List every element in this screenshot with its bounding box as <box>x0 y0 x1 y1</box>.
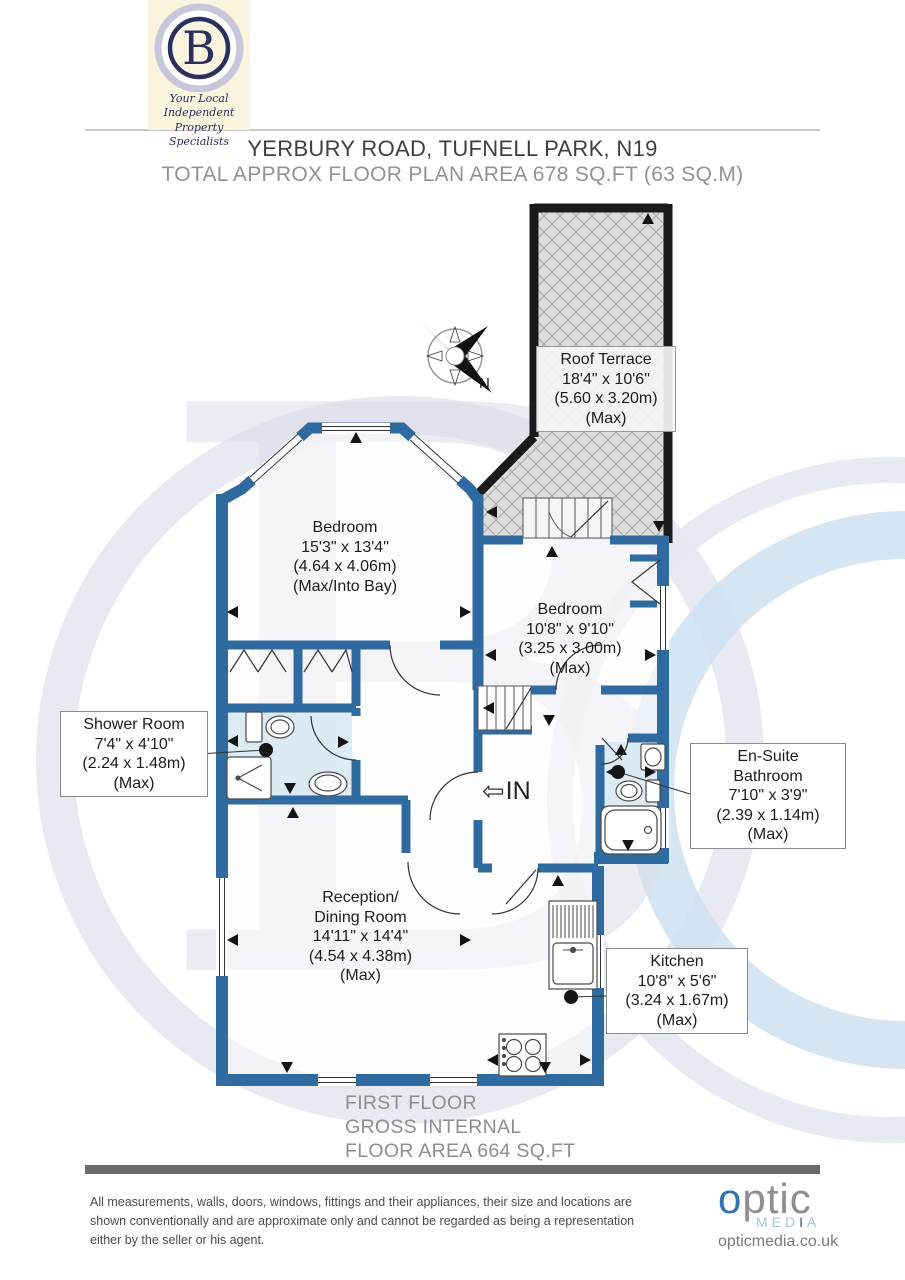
room-name: En-Suite <box>695 747 841 767</box>
room-dims-metric: (4.54 x 4.38m) <box>268 947 453 967</box>
bedroom-rear-label: Bedroom 10'8" x 9'10" (3.25 x 3.00m) (Ma… <box>480 600 660 678</box>
footer-divider-bar <box>85 1165 820 1174</box>
room-name: Bedroom <box>255 518 435 538</box>
terrace-steps <box>523 498 612 538</box>
room-dims-imperial: 7'10" x 3'9" <box>695 786 841 806</box>
disclaimer-line1: All measurements, walls, doors, windows,… <box>90 1193 675 1212</box>
room-name: Dining Room <box>268 908 453 928</box>
ensuite-label: En-Suite Bathroom 7'10" x 3'9" (2.39 x 1… <box>690 743 846 849</box>
room-dims-imperial: 10'8" x 5'6" <box>611 972 743 992</box>
room-name: Reception/ <box>268 888 453 908</box>
disclaimer-line3: either by the seller or his agent. <box>90 1231 675 1250</box>
room-qualifier: (Max) <box>539 409 673 429</box>
room-qualifier: (Max) <box>611 1011 743 1031</box>
bathtub-icon <box>601 806 661 854</box>
room-dims-imperial: 14'11" x 14'4" <box>268 927 453 947</box>
floorplan-drawing: B <box>0 0 905 1280</box>
vendor-media-label: MEDIA <box>756 1214 898 1230</box>
bedroom-front-label: Bedroom 15'3" x 13'4" (4.64 x 4.06m) (Ma… <box>255 518 435 596</box>
vendor-logo: optic MEDIA opticmedia.co.uk <box>718 1178 898 1251</box>
room-dims-imperial: 18'4" x 10'6" <box>539 370 673 390</box>
vendor-media-right: A <box>807 1214 820 1230</box>
floorplan-page: B Your Local Independent Property Specia… <box>0 0 905 1280</box>
entrance-label: ⇦ IN <box>482 776 531 807</box>
reception-label: Reception/ Dining Room 14'11" x 14'4" (4… <box>268 888 453 986</box>
vendor-wordmark-o: o <box>718 1175 742 1222</box>
entrance-arrow-icon: ⇦ <box>482 776 505 807</box>
room-dims-imperial: 7'4" x 4'10" <box>65 735 203 755</box>
room-dims-metric: (3.24 x 1.67m) <box>611 991 743 1011</box>
room-qualifier: (Max) <box>268 966 453 986</box>
room-name: Shower Room <box>65 715 203 735</box>
room-name: Bedroom <box>480 600 660 620</box>
shower-tray-icon <box>227 757 271 799</box>
room-qualifier: (Max) <box>695 825 841 845</box>
room-dims-imperial: 15'3" x 13'4" <box>255 538 435 558</box>
room-dims-metric: (2.24 x 1.48m) <box>65 754 203 774</box>
room-qualifier: (Max/Into Bay) <box>255 577 435 597</box>
compass-north-label: N <box>479 375 490 392</box>
room-dims-metric: (3.25 x 3.00m) <box>480 639 660 659</box>
room-qualifier: (Max) <box>480 659 660 679</box>
room-dims-imperial: 10'8" x 9'10" <box>480 620 660 640</box>
room-name: Kitchen <box>611 952 743 972</box>
floor-summary-line1: FIRST FLOOR <box>345 1092 575 1116</box>
roof-terrace-label: Roof Terrace 18'4" x 10'6" (5.60 x 3.20m… <box>536 346 676 432</box>
room-name: Bathroom <box>695 767 841 787</box>
vendor-media-left: MED <box>756 1214 799 1230</box>
room-qualifier: (Max) <box>65 774 203 794</box>
vendor-website: opticmedia.co.uk <box>718 1233 898 1251</box>
room-dims-metric: (4.64 x 4.06m) <box>255 557 435 577</box>
shower-room-label: Shower Room 7'4" x 4'10" (2.24 x 1.48m) … <box>60 711 208 797</box>
disclaimer-line2: shown conventionally and are approximate… <box>90 1212 675 1231</box>
floor-summary-line2: GROSS INTERNAL <box>345 1116 575 1140</box>
kitchen-sink-icon <box>549 901 597 989</box>
sink-icon <box>641 744 665 770</box>
hob-icon <box>499 1034 546 1076</box>
room-name: Roof Terrace <box>539 350 673 370</box>
vendor-media-mid: I <box>799 1214 807 1230</box>
kitchen-label: Kitchen 10'8" x 5'6" (3.24 x 1.67m) (Max… <box>606 948 748 1034</box>
room-dims-metric: (2.39 x 1.14m) <box>695 806 841 826</box>
entrance-text: IN <box>506 777 531 806</box>
room-dims-metric: (5.60 x 3.20m) <box>539 389 673 409</box>
disclaimer-text: All measurements, walls, doors, windows,… <box>90 1193 675 1249</box>
floor-summary: FIRST FLOOR GROSS INTERNAL FLOOR AREA 66… <box>345 1092 575 1164</box>
sink-icon <box>309 772 347 796</box>
floor-summary-line3: FLOOR AREA 664 SQ.FT <box>345 1140 575 1164</box>
